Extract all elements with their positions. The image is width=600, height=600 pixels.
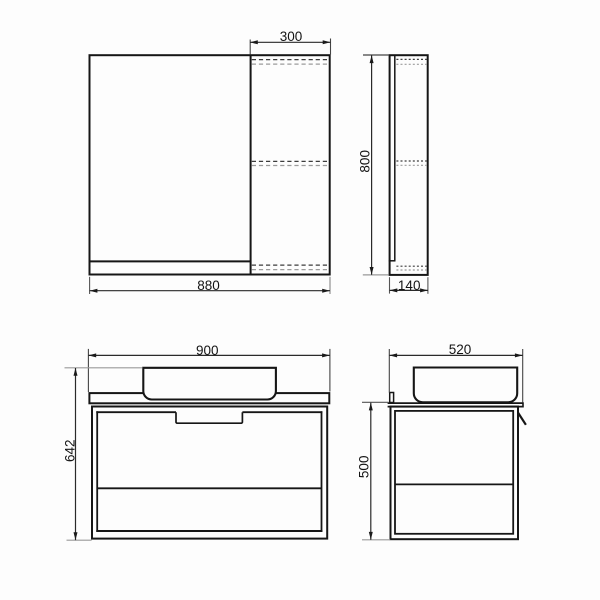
svg-text:300: 300 [280,29,303,44]
svg-text:800: 800 [358,150,373,173]
svg-text:140: 140 [398,278,421,293]
svg-text:500: 500 [357,456,372,479]
svg-text:642: 642 [63,439,78,462]
svg-text:900: 900 [196,343,219,358]
svg-text:520: 520 [449,342,472,357]
svg-text:880: 880 [197,278,220,293]
